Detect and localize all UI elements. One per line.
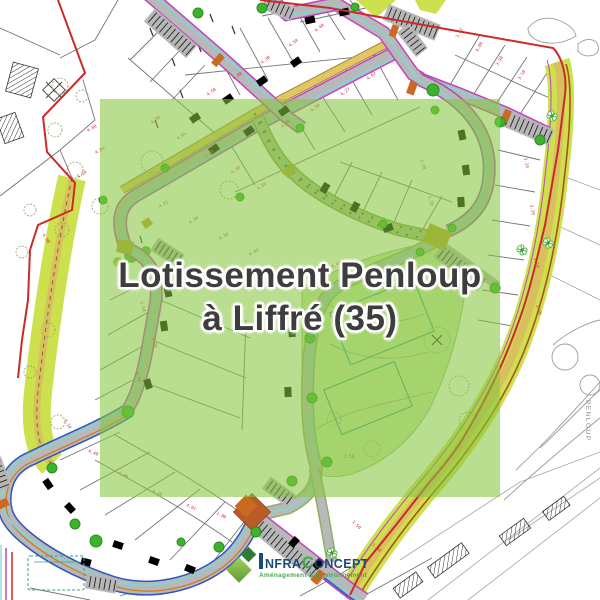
logo: NFRACONCEPT Aménagement & Environnement [229, 547, 369, 585]
project-title: Lotissement Penloup à Liffré (35) [100, 254, 500, 340]
diamond-dark-icon [241, 547, 257, 563]
letter-i-bar [259, 553, 263, 569]
territory-label: PENLOUP [584, 400, 591, 442]
brand-wordmark: NFRACONCEPT Aménagement & Environnement [259, 553, 369, 579]
logo-diamonds-icon [229, 547, 256, 585]
brand-part-oncept: ONCEPT [314, 558, 369, 571]
project-title-line1: Lotissement Penloup [100, 254, 500, 297]
brand-part-c: C [302, 556, 314, 570]
overlay-tint: Lotissement Penloup à Liffré (35) [100, 99, 500, 497]
brand-tagline: Aménagement & Environnement [259, 572, 369, 579]
screenshot: PENLOUP [0, 0, 600, 600]
brand-part-nfra: NFRA [265, 558, 301, 571]
project-title-line2: à Liffré (35) [100, 297, 500, 340]
